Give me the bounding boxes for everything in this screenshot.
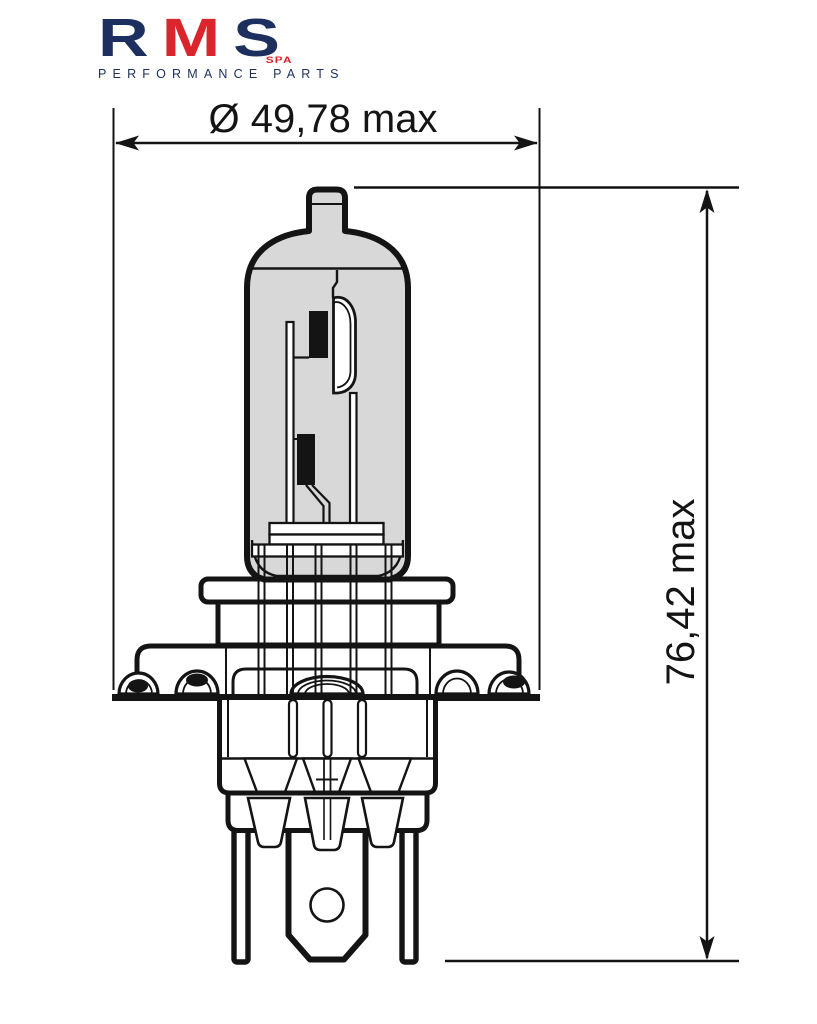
contact-pin-center [324, 700, 332, 757]
spring-wire-dot-right [503, 676, 525, 689]
crimp-tab-left [248, 798, 290, 847]
contact-pin-right [358, 700, 366, 757]
bulb-glass-envelope [247, 190, 408, 580]
height-dimension-label: 76,42 max [659, 499, 703, 686]
mount-platform-base [252, 545, 403, 557]
collar-step [218, 601, 439, 645]
diameter-dimension-label: Ø 49,78 max [208, 97, 437, 141]
filament-shield [334, 297, 356, 393]
bulb-base-lower [228, 793, 427, 850]
bulb-base-body [220, 698, 436, 794]
bulb-technical-drawing: Ø 49,78 max 76,42 max [0, 0, 817, 1024]
blade-right [402, 820, 416, 962]
blade-left [234, 820, 248, 962]
technical-drawing-page: RMS SPA PERFORMANCE PARTS Ø 49,78 max 76… [0, 0, 817, 1024]
low-beam-filament [297, 434, 315, 485]
glass-bulb-outline [247, 190, 408, 580]
high-beam-filament [309, 311, 328, 358]
contact-pin-left [289, 700, 297, 757]
mount-platform-mid [270, 535, 384, 545]
spring-wire-dot-mid [186, 674, 208, 687]
spring-wire-dot-left [128, 680, 148, 693]
right-support-rod [350, 393, 357, 544]
left-support-rod [287, 322, 294, 544]
mount-platform-top [270, 523, 384, 535]
